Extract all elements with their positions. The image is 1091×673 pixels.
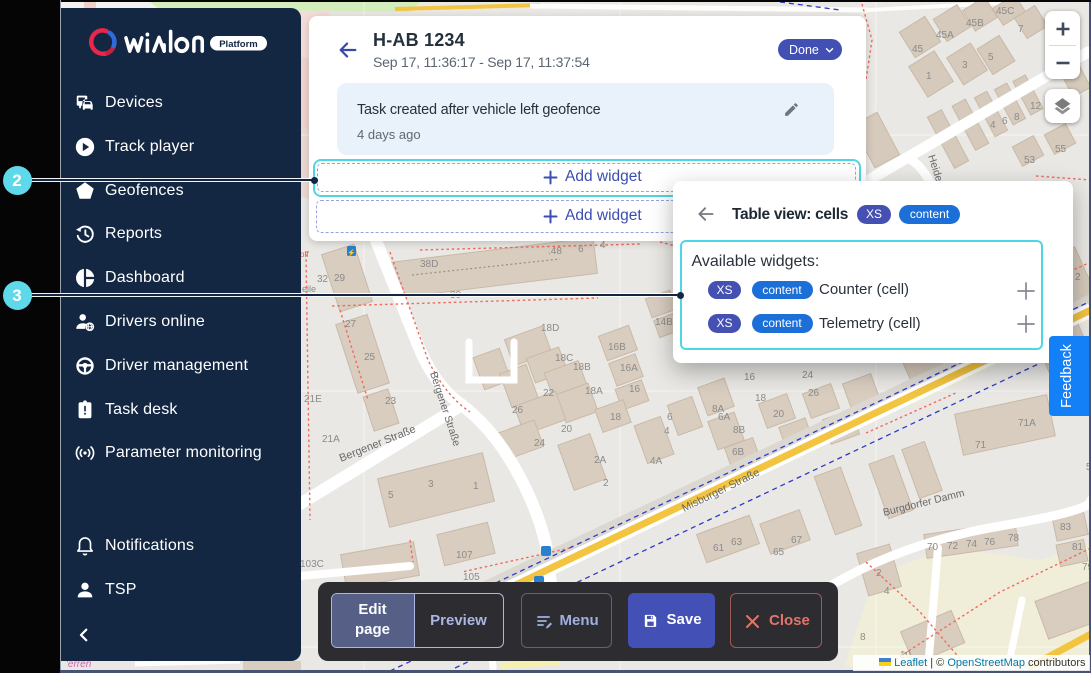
- svg-text:103C: 103C: [300, 559, 324, 570]
- svg-text:2: 2: [603, 478, 609, 489]
- svg-text:6: 6: [667, 412, 673, 423]
- svg-text:7: 7: [1018, 24, 1024, 35]
- svg-text:16A: 16A: [620, 363, 638, 374]
- svg-text:61: 61: [713, 543, 725, 554]
- svg-text:3: 3: [962, 60, 968, 71]
- svg-text:14B: 14B: [655, 317, 673, 328]
- svg-text:16: 16: [629, 384, 641, 395]
- svg-text:16: 16: [744, 372, 756, 383]
- svg-text:45C: 45C: [996, 6, 1014, 17]
- svg-text:72: 72: [947, 541, 959, 552]
- svg-text:6: 6: [1002, 116, 1008, 127]
- svg-text:45A: 45A: [936, 30, 954, 41]
- svg-text:71A: 71A: [1018, 418, 1036, 429]
- svg-text:22: 22: [543, 388, 555, 399]
- svg-text:20: 20: [773, 409, 785, 420]
- svg-text:23: 23: [385, 396, 397, 407]
- svg-text:1: 1: [473, 481, 479, 492]
- svg-text:53: 53: [1024, 155, 1036, 166]
- svg-text:18: 18: [610, 412, 622, 423]
- svg-text:83: 83: [1060, 522, 1072, 533]
- svg-text:29: 29: [334, 273, 346, 284]
- svg-text:4: 4: [600, 240, 606, 251]
- svg-text:20: 20: [561, 424, 573, 435]
- svg-text:76: 76: [984, 537, 996, 548]
- svg-text:18A: 18A: [585, 386, 603, 397]
- svg-text:3: 3: [428, 479, 434, 490]
- svg-text:8B: 8B: [733, 425, 746, 436]
- svg-text:32: 32: [317, 274, 329, 285]
- svg-text:26: 26: [512, 405, 524, 416]
- svg-text:24: 24: [802, 370, 814, 381]
- svg-text:18D: 18D: [541, 323, 559, 334]
- svg-text:63: 63: [731, 537, 743, 548]
- svg-text:Platform: Platform: [219, 39, 258, 50]
- svg-text:78: 78: [1008, 533, 1020, 544]
- svg-text:8: 8: [1014, 112, 1020, 123]
- svg-text:21A: 21A: [322, 434, 340, 445]
- svg-text:4: 4: [884, 586, 890, 597]
- svg-text:12: 12: [1030, 101, 1042, 112]
- svg-text:5: 5: [388, 490, 394, 501]
- svg-text:24: 24: [534, 438, 546, 449]
- svg-text:6: 6: [578, 244, 584, 255]
- svg-text:5: 5: [988, 52, 994, 63]
- svg-text:2A: 2A: [594, 455, 607, 466]
- svg-text:8: 8: [860, 632, 866, 643]
- svg-text:18: 18: [755, 393, 767, 404]
- svg-text:27: 27: [345, 319, 357, 330]
- svg-text:.48: .48: [548, 246, 562, 257]
- svg-text:16B: 16B: [608, 342, 626, 353]
- svg-text:38D: 38D: [420, 259, 438, 270]
- svg-text:65: 65: [773, 547, 785, 558]
- svg-text:8A: 8A: [712, 404, 725, 415]
- svg-text:4: 4: [664, 426, 670, 437]
- svg-text:off: off: [300, 250, 310, 259]
- svg-text:70: 70: [927, 542, 939, 553]
- svg-text:2: 2: [876, 568, 882, 579]
- svg-text:55: 55: [1055, 144, 1067, 155]
- svg-text:45: 45: [912, 44, 924, 55]
- svg-text:21E: 21E: [304, 394, 322, 405]
- svg-text:45B: 45B: [966, 18, 984, 29]
- svg-text:26: 26: [808, 388, 820, 399]
- svg-text:18B: 18B: [573, 362, 591, 373]
- svg-text:67: 67: [791, 535, 803, 546]
- svg-text:74: 74: [966, 539, 978, 550]
- svg-text:4: 4: [990, 120, 996, 131]
- svg-text:107: 107: [456, 550, 473, 561]
- svg-text:25: 25: [364, 352, 376, 363]
- svg-text:6B: 6B: [732, 447, 745, 458]
- svg-text:⚡: ⚡: [347, 248, 356, 257]
- svg-text:18C: 18C: [555, 353, 573, 364]
- svg-text:81: 81: [1072, 542, 1084, 553]
- svg-text:71: 71: [975, 440, 987, 451]
- svg-text:1: 1: [926, 71, 932, 82]
- svg-text:4A: 4A: [650, 456, 663, 467]
- svg-text:2: 2: [1075, 272, 1081, 283]
